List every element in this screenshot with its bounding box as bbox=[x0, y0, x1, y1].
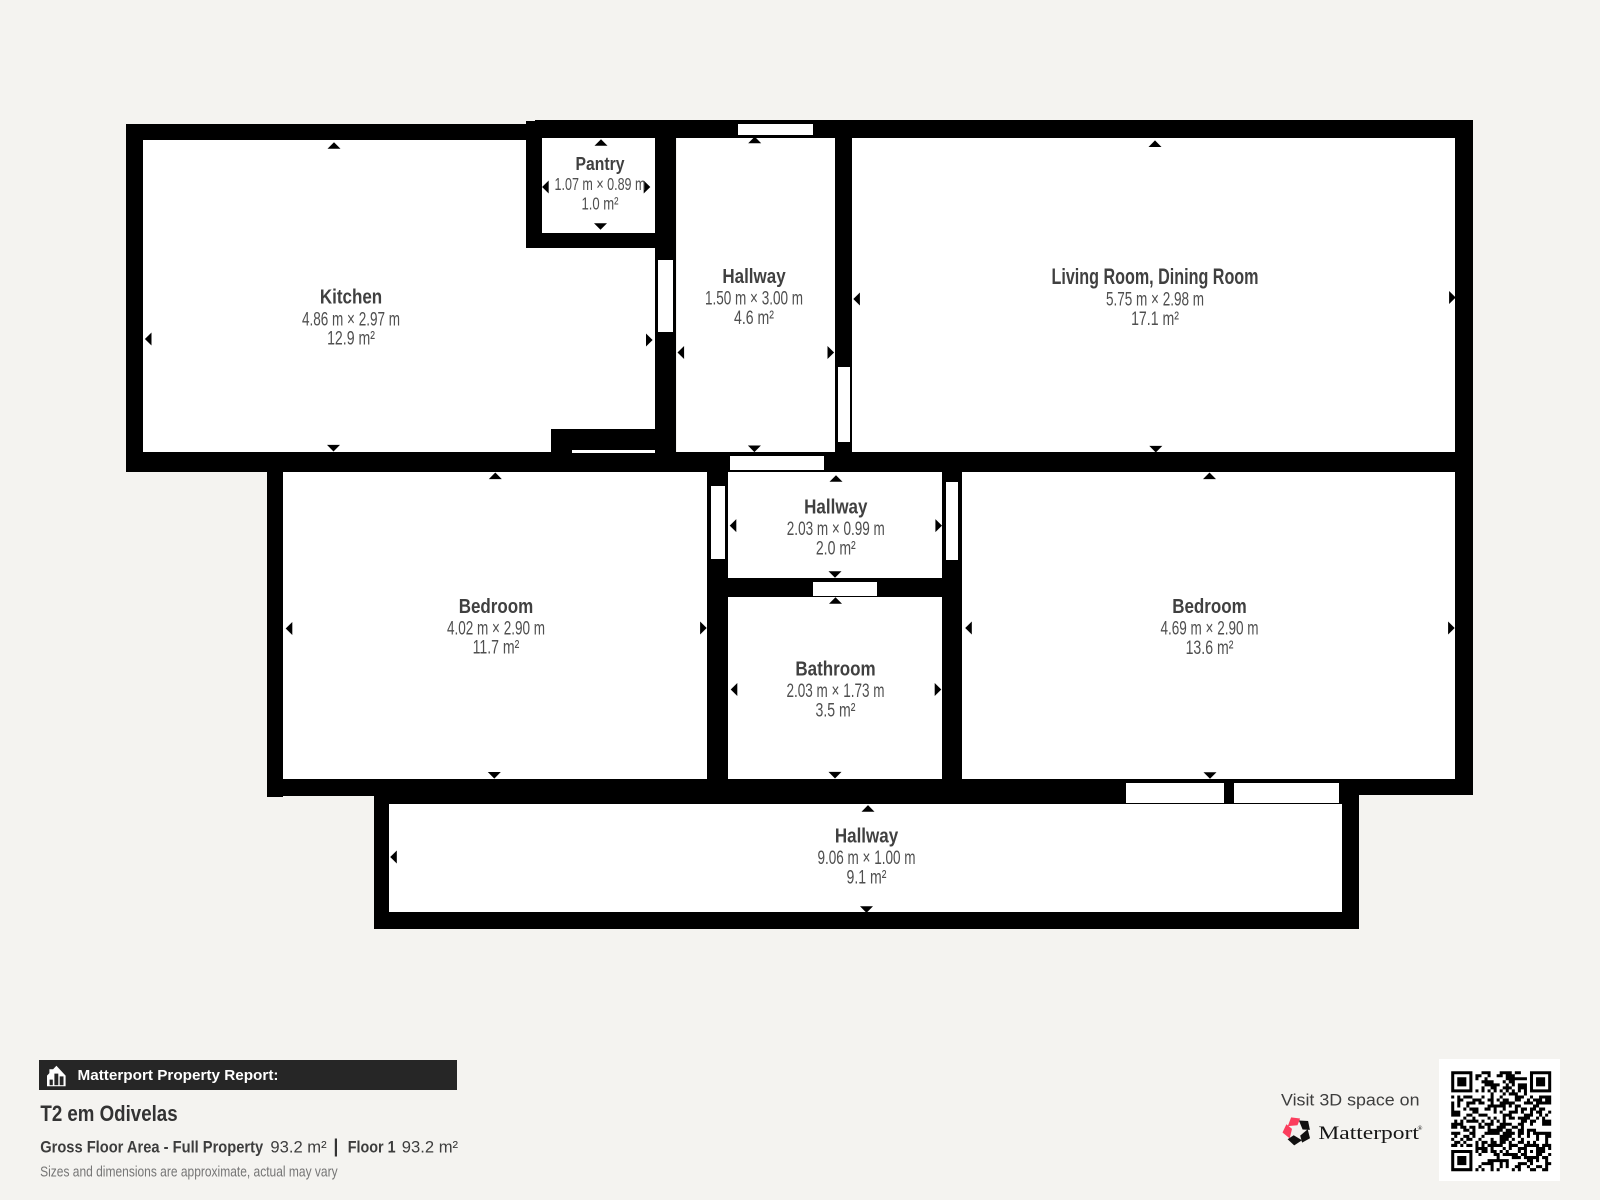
svg-text:Hallway: Hallway bbox=[722, 266, 786, 288]
svg-text:4.69 m × 2.90 m: 4.69 m × 2.90 m bbox=[1161, 619, 1259, 640]
svg-text:13.6 m²: 13.6 m² bbox=[1186, 638, 1234, 659]
svg-text:1.07 m × 0.89 m: 1.07 m × 0.89 m bbox=[555, 174, 646, 194]
svg-text:®: ® bbox=[1418, 1125, 1423, 1132]
svg-text:17.1 m²: 17.1 m² bbox=[1131, 309, 1179, 330]
svg-text:Visit 3D space on: Visit 3D space on bbox=[1281, 1090, 1420, 1109]
svg-text:Pantry: Pantry bbox=[576, 153, 626, 174]
svg-text:Kitchen: Kitchen bbox=[320, 287, 382, 309]
svg-text:4.86 m × 2.97 m: 4.86 m × 2.97 m bbox=[302, 309, 400, 330]
svg-text:Matterport Property Report:: Matterport Property Report: bbox=[78, 1068, 279, 1084]
svg-text:1.50 m × 3.00 m: 1.50 m × 3.00 m bbox=[705, 289, 803, 310]
svg-text:12.9 m²: 12.9 m² bbox=[327, 329, 375, 350]
svg-text:Floor 1: Floor 1 bbox=[348, 1137, 396, 1156]
svg-text:2.0 m²: 2.0 m² bbox=[816, 538, 856, 559]
svg-text:11.7 m²: 11.7 m² bbox=[473, 638, 520, 659]
svg-text:9.1 m²: 9.1 m² bbox=[847, 867, 887, 888]
svg-text:93.2 m²: 93.2 m² bbox=[270, 1137, 327, 1156]
svg-text:2.03 m × 0.99 m: 2.03 m × 0.99 m bbox=[787, 519, 885, 540]
svg-text:Bedroom: Bedroom bbox=[1172, 596, 1247, 618]
svg-text:4.6 m²: 4.6 m² bbox=[734, 308, 774, 329]
svg-text:T2 em Odivelas: T2 em Odivelas bbox=[40, 1101, 177, 1126]
svg-text:Bathroom: Bathroom bbox=[795, 659, 875, 681]
svg-text:Gross Floor Area - Full Proper: Gross Floor Area - Full Property bbox=[40, 1137, 264, 1156]
svg-text:Sizes and dimensions are appro: Sizes and dimensions are approximate, ac… bbox=[40, 1163, 338, 1180]
svg-text:9.06 m × 1.00 m: 9.06 m × 1.00 m bbox=[818, 848, 916, 869]
svg-text:Bedroom: Bedroom bbox=[459, 596, 534, 618]
svg-text:93.2 m²: 93.2 m² bbox=[402, 1137, 459, 1156]
svg-text:Hallway: Hallway bbox=[835, 826, 899, 848]
svg-text:5.75 m × 2.98 m: 5.75 m × 2.98 m bbox=[1106, 290, 1204, 311]
svg-text:4.02 m × 2.90 m: 4.02 m × 2.90 m bbox=[447, 619, 545, 640]
svg-text:Living Room, Dining Room: Living Room, Dining Room bbox=[1052, 264, 1259, 289]
svg-text:Matterport: Matterport bbox=[1318, 1123, 1419, 1144]
svg-text:3.5 m²: 3.5 m² bbox=[816, 700, 856, 721]
svg-text:1.0 m²: 1.0 m² bbox=[582, 194, 619, 214]
svg-text:2.03 m × 1.73 m: 2.03 m × 1.73 m bbox=[787, 681, 885, 702]
svg-text:Hallway: Hallway bbox=[804, 497, 868, 519]
